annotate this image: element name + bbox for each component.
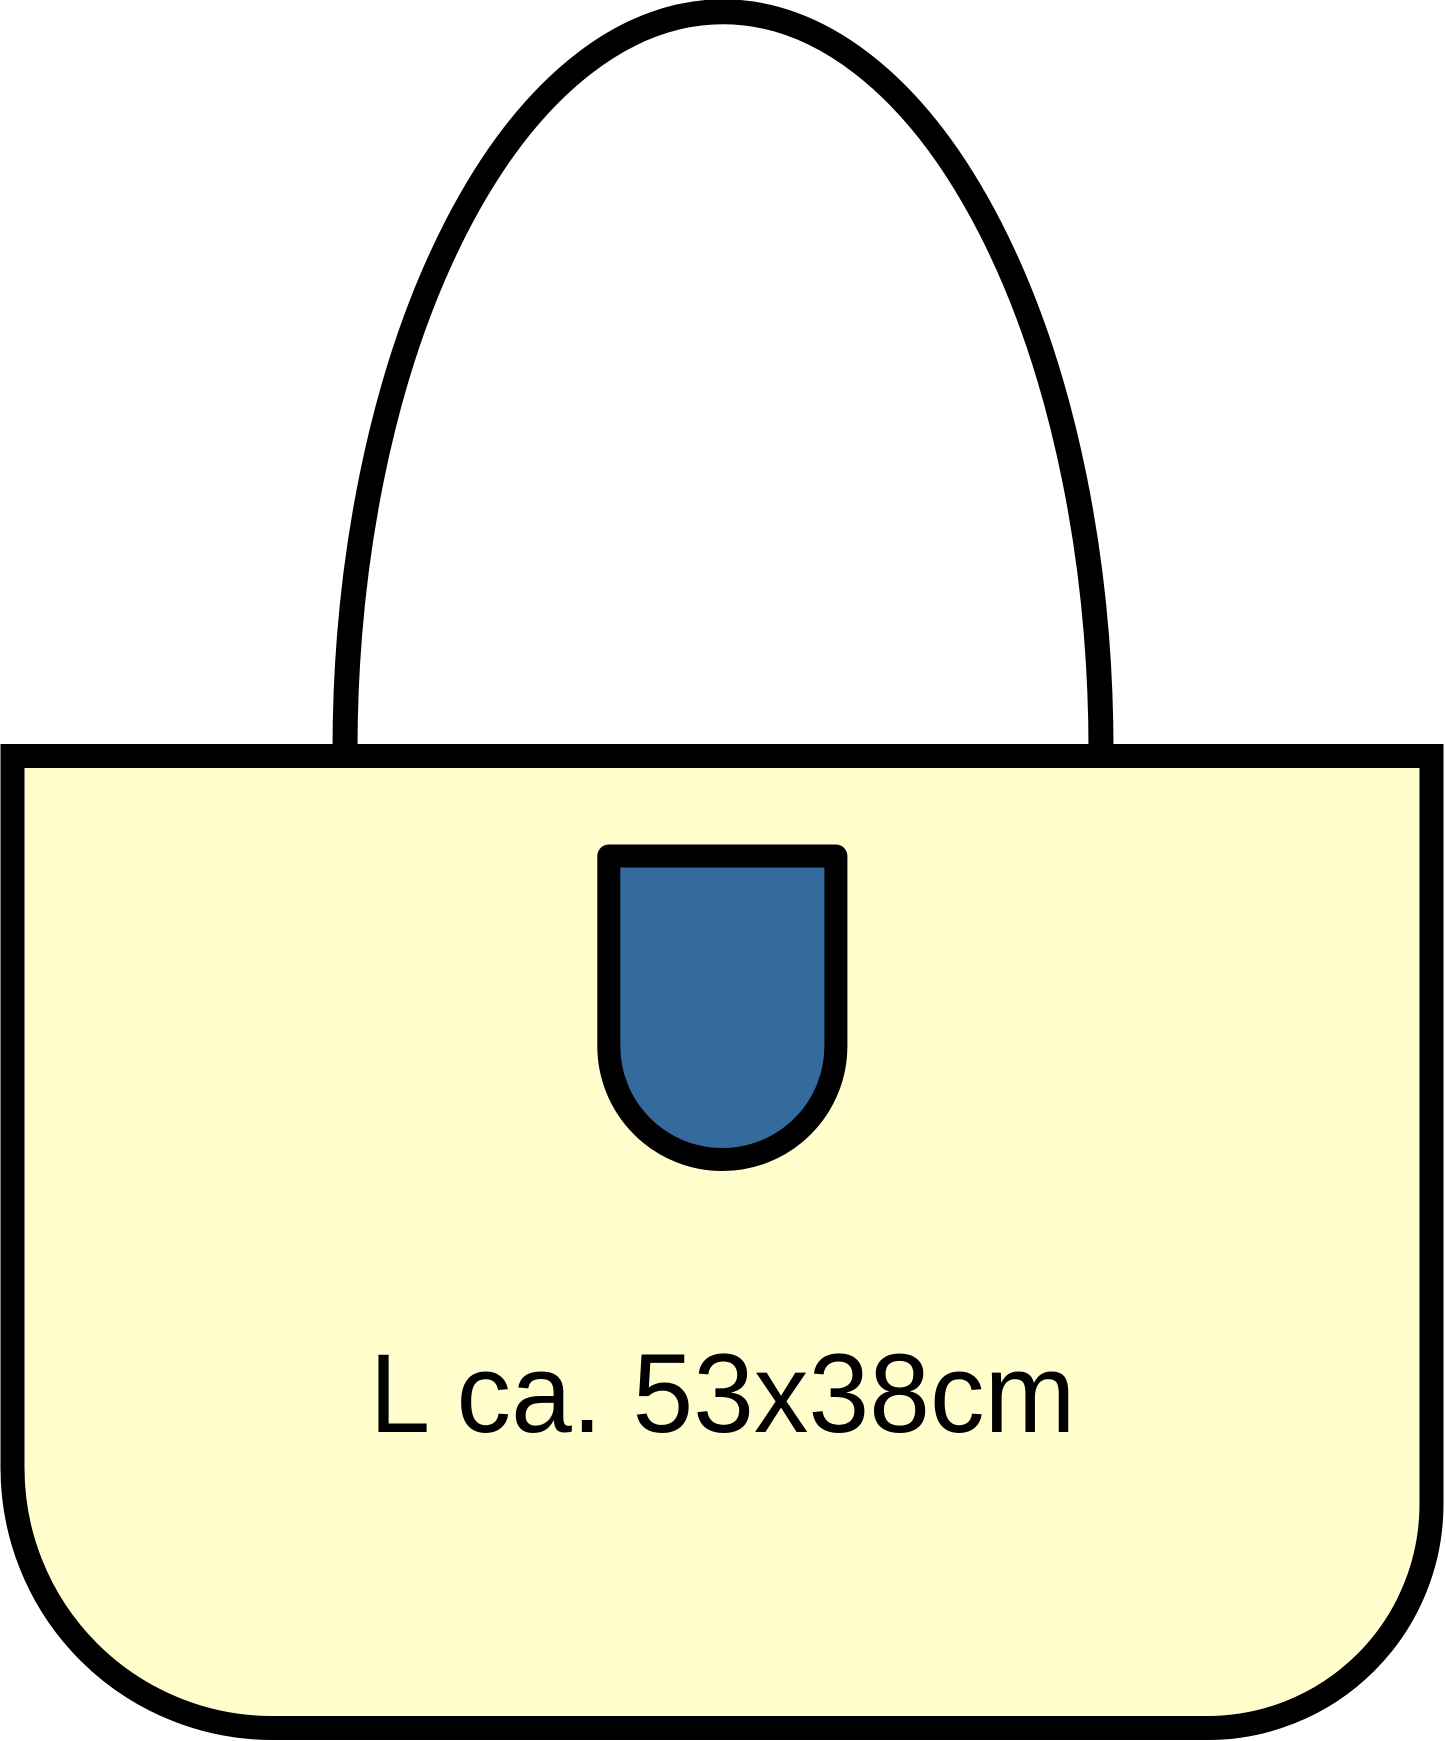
- svg-text:L ca. 53x38cm: L ca. 53x38cm: [370, 1331, 1076, 1456]
